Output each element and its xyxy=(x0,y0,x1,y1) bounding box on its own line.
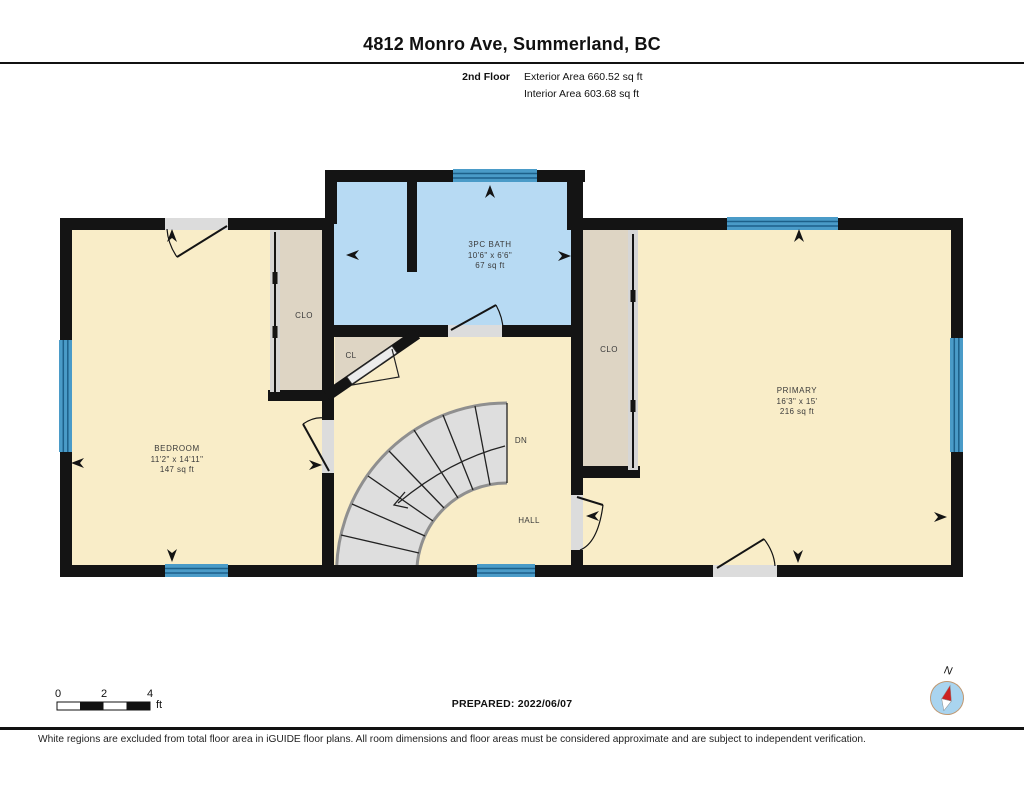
interior-area: Interior Area 603.68 sq ft xyxy=(524,88,639,100)
room-fills xyxy=(66,176,957,571)
bath-dims: 10'6" x 6'6" xyxy=(468,251,512,262)
primary-room xyxy=(583,224,957,571)
header-divider xyxy=(0,62,1024,64)
floor-label: 2nd Floor xyxy=(400,71,510,83)
bath-name: 3PC BATH xyxy=(468,240,512,251)
footer-disclaimer: White regions are excluded from total fl… xyxy=(38,734,998,745)
bedroom-label: BEDROOM 11'2" x 14'11" 147 sq ft xyxy=(151,444,204,476)
compass-icon xyxy=(927,678,967,718)
primary-name: PRIMARY xyxy=(777,386,818,397)
floor-plan-drawing xyxy=(0,0,1024,791)
bath-label: 3PC BATH 10'6" x 6'6" 67 sq ft xyxy=(468,240,512,272)
primary-dims: 16'3" x 15' xyxy=(777,397,818,408)
bedroom-name: BEDROOM xyxy=(151,444,204,455)
bedroom-bottom-window xyxy=(165,564,228,577)
bathroom-room xyxy=(331,176,577,331)
stairs-down-label: DN xyxy=(515,436,527,447)
exterior-area: Exterior Area 660.52 sq ft xyxy=(524,71,642,83)
footer-divider xyxy=(0,727,1024,730)
primary-area: 216 sq ft xyxy=(777,407,818,418)
scale-bar xyxy=(57,702,150,710)
closet-small-label: CL xyxy=(345,351,356,362)
scale-tick-4: 4 xyxy=(147,688,153,700)
primary-right-window xyxy=(950,338,963,452)
bedroom-dims: 11'2" x 14'11" xyxy=(151,455,204,466)
scale-unit: ft xyxy=(156,699,162,711)
primary-top-window xyxy=(727,217,838,230)
floorplan-page: 4812 Monro Ave, Summerland, BC 2nd Floor… xyxy=(0,0,1024,791)
prepared-date: PREPARED: 2022/06/07 xyxy=(452,698,573,710)
hall-bottom-window xyxy=(477,564,535,577)
hall-label: HALL xyxy=(518,516,540,527)
scale-tick-0: 0 xyxy=(55,688,61,700)
bath-area: 67 sq ft xyxy=(468,261,512,272)
bath-top-window xyxy=(453,169,537,182)
closet-right-label: CLO xyxy=(600,345,618,356)
bedroom-area: 147 sq ft xyxy=(151,465,204,476)
closet-left-label: CLO xyxy=(295,311,313,322)
page-title: 4812 Monro Ave, Summerland, BC xyxy=(0,34,1024,55)
bedroom-left-window xyxy=(59,340,72,452)
scale-tick-2: 2 xyxy=(101,688,107,700)
primary-label: PRIMARY 16'3" x 15' 216 sq ft xyxy=(777,386,818,418)
